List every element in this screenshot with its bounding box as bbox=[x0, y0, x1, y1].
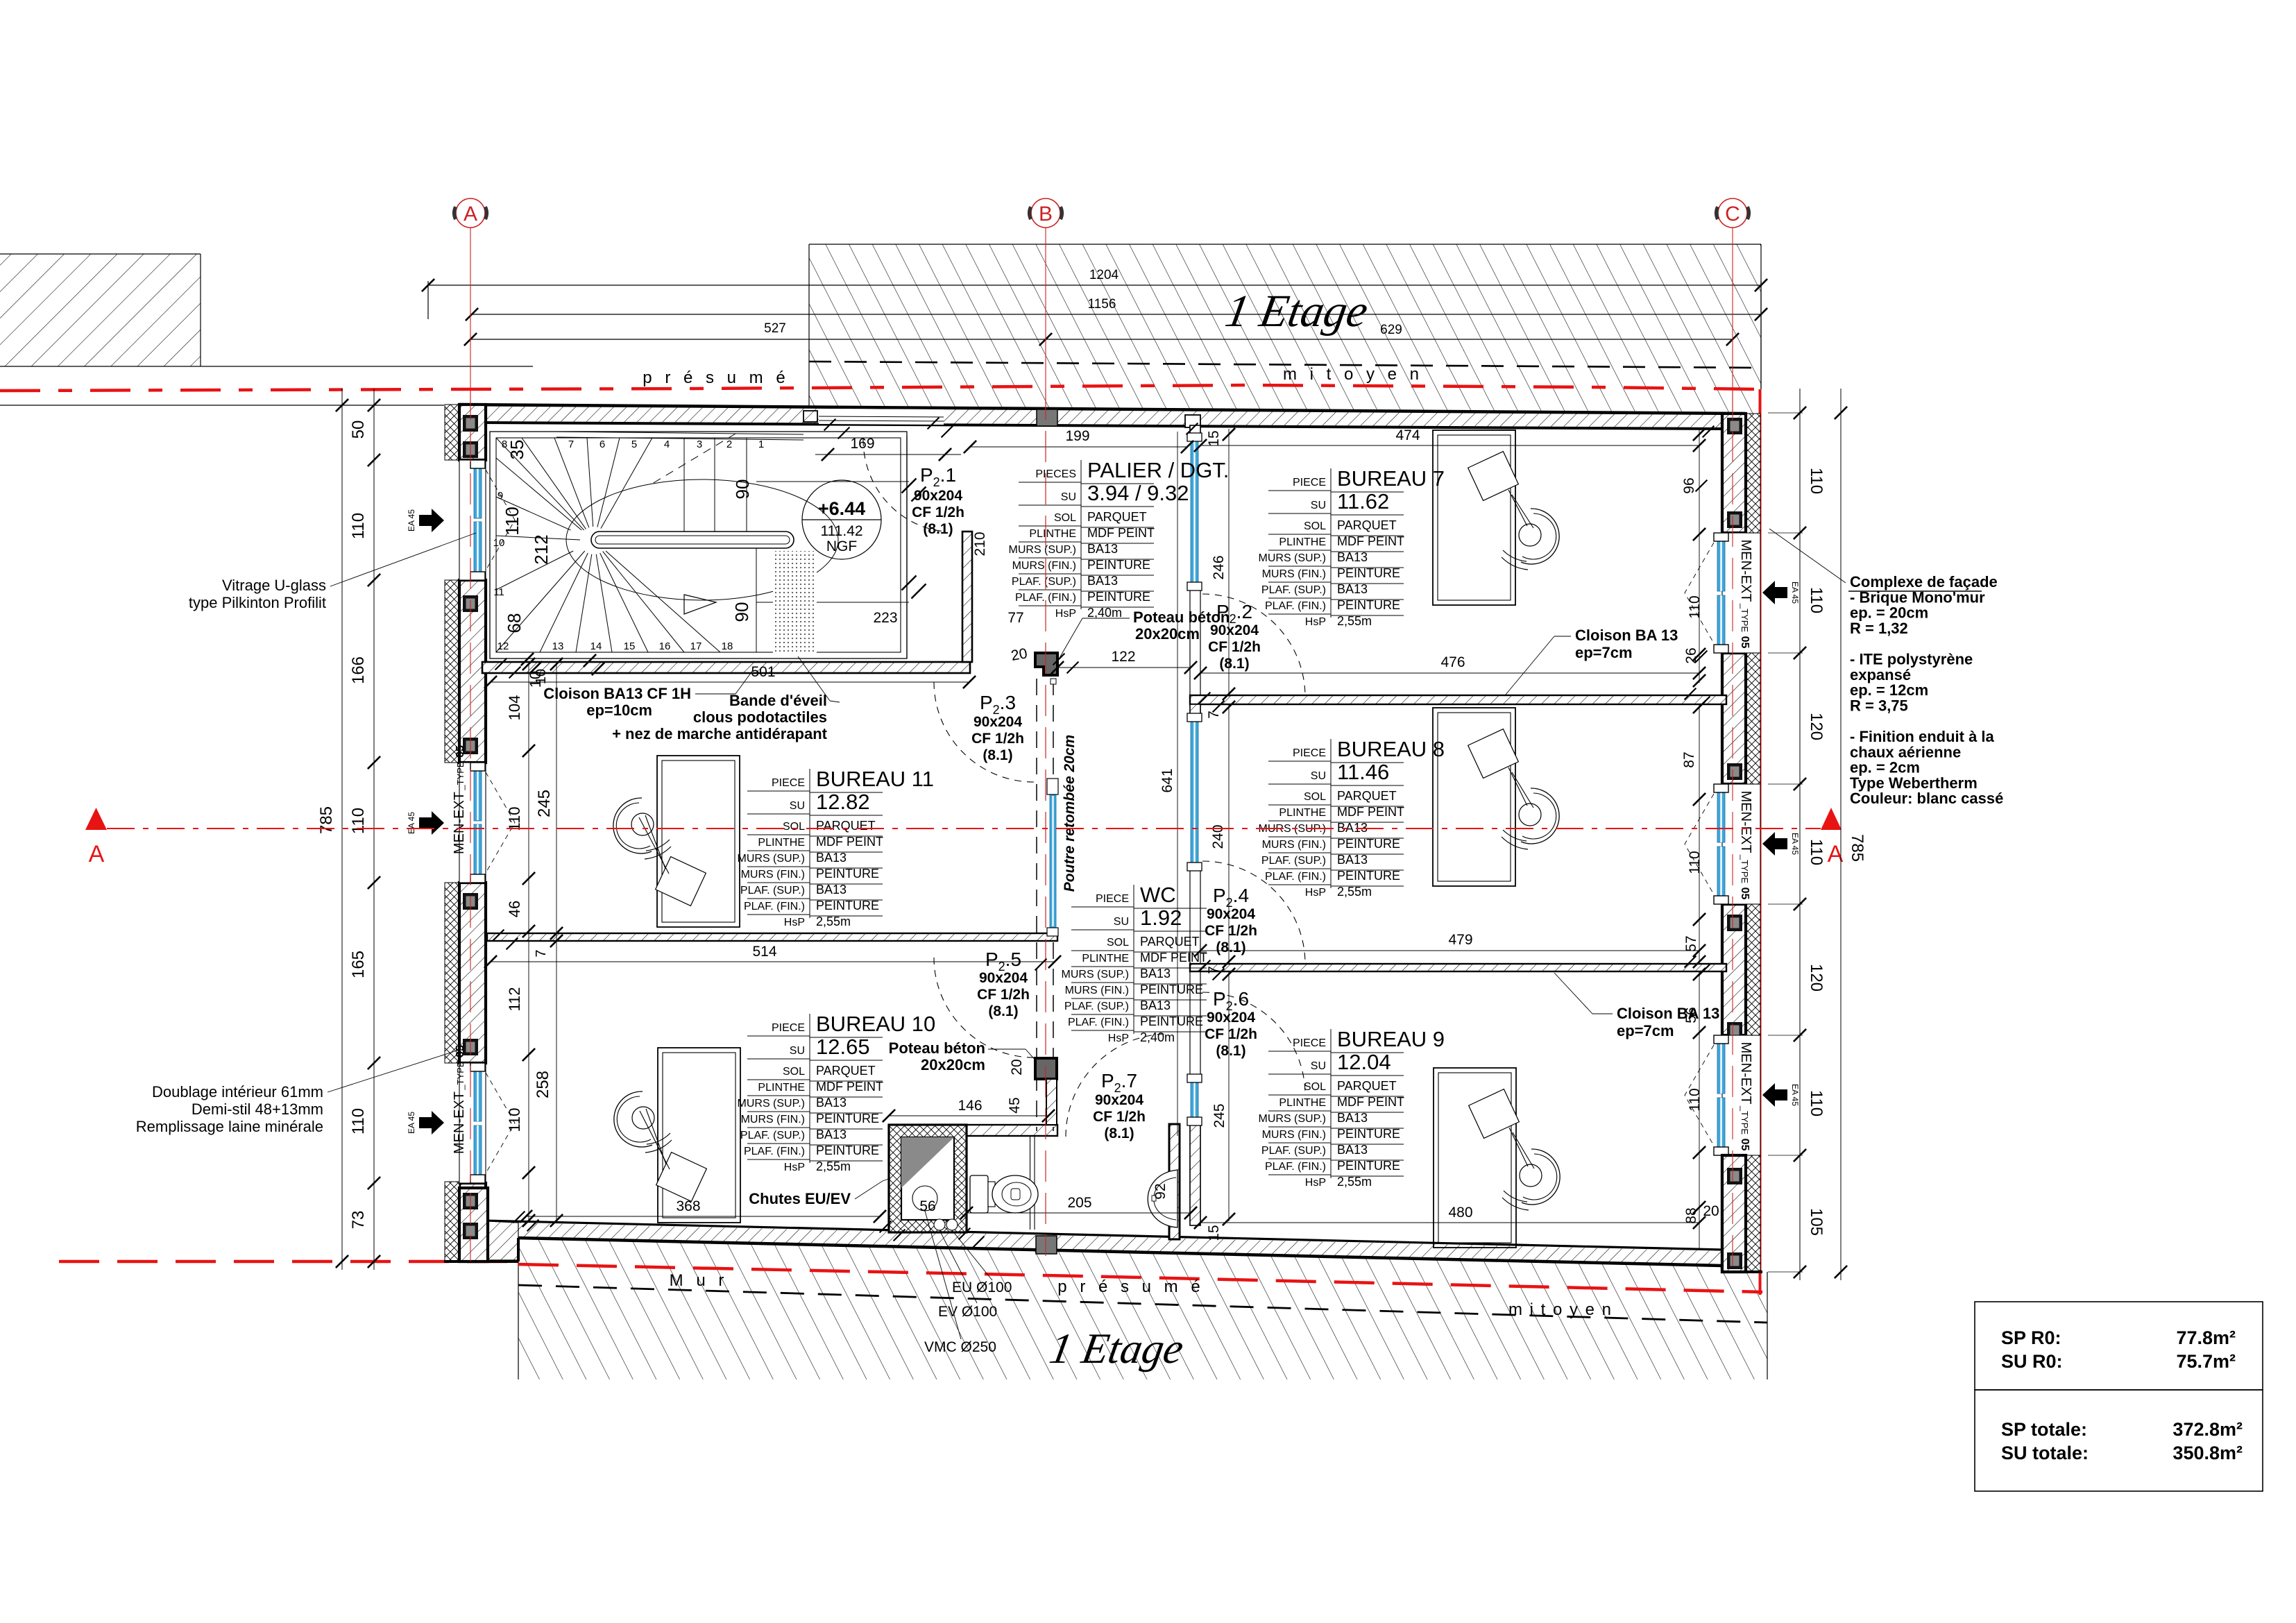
svg-text:PLINTHE: PLINTHE bbox=[758, 1082, 805, 1094]
svg-text:68: 68 bbox=[504, 613, 525, 634]
svg-text:PEINTURE: PEINTURE bbox=[816, 899, 879, 912]
svg-text:SOL: SOL bbox=[1304, 520, 1326, 532]
svg-text:PEINTURE: PEINTURE bbox=[1337, 566, 1400, 580]
svg-text:SP R0:: SP R0: bbox=[2001, 1327, 2061, 1348]
svg-text:EA 45: EA 45 bbox=[407, 509, 416, 532]
svg-text:PLAF. (SUP.): PLAF. (SUP.) bbox=[1261, 584, 1326, 596]
svg-text:Couleur: blanc cassé: Couleur: blanc cassé bbox=[1850, 790, 2003, 807]
svg-text:BUREAU 7: BUREAU 7 bbox=[1337, 466, 1445, 491]
svg-text:(8.1): (8.1) bbox=[1219, 656, 1249, 672]
svg-text:CF 1/2h: CF 1/2h bbox=[1205, 923, 1257, 939]
svg-text:B: B bbox=[1039, 203, 1053, 226]
svg-text:SU: SU bbox=[1311, 1060, 1326, 1072]
svg-text:BUREAU 9: BUREAU 9 bbox=[1337, 1027, 1445, 1051]
svg-text:SU: SU bbox=[1311, 500, 1326, 511]
svg-text:146: 146 bbox=[958, 1098, 982, 1114]
svg-text:1156: 1156 bbox=[1088, 297, 1116, 312]
svg-text:MEN-EXT: MEN-EXT bbox=[1738, 1042, 1753, 1105]
svg-text:56: 56 bbox=[919, 1198, 935, 1214]
svg-text:PEINTURE: PEINTURE bbox=[1337, 869, 1400, 883]
svg-text:90x204: 90x204 bbox=[1095, 1092, 1143, 1108]
svg-text:m i t o y e n: m i t o y e n bbox=[1283, 365, 1423, 384]
svg-text:46: 46 bbox=[506, 901, 523, 917]
svg-text:368: 368 bbox=[676, 1198, 700, 1214]
svg-text:SOL: SOL bbox=[1054, 512, 1076, 524]
svg-text:PLAF. (SUP.): PLAF. (SUP.) bbox=[740, 1130, 805, 1141]
svg-text:4: 4 bbox=[664, 439, 670, 450]
svg-text:73: 73 bbox=[349, 1211, 368, 1230]
svg-text:expansé: expansé bbox=[1850, 666, 1911, 683]
svg-text:MURS (FIN.): MURS (FIN.) bbox=[741, 1114, 805, 1125]
svg-text:PIECE: PIECE bbox=[1293, 747, 1326, 759]
svg-text:MURS (SUP.): MURS (SUP.) bbox=[1259, 552, 1327, 564]
svg-text:Remplissage laine minérale: Remplissage laine minérale bbox=[136, 1118, 323, 1135]
svg-text:476: 476 bbox=[1440, 654, 1465, 670]
svg-text:165: 165 bbox=[349, 951, 368, 978]
svg-text:HsP: HsP bbox=[1305, 887, 1326, 899]
svg-text:HsP: HsP bbox=[784, 917, 805, 928]
svg-text:57: 57 bbox=[1683, 935, 1699, 951]
svg-text:90x204: 90x204 bbox=[914, 488, 962, 504]
svg-text:35: 35 bbox=[507, 440, 527, 460]
svg-text:ep=7cm: ep=7cm bbox=[1575, 644, 1633, 661]
svg-text:BA13: BA13 bbox=[1140, 999, 1171, 1012]
svg-text:205: 205 bbox=[1067, 1195, 1091, 1211]
svg-text:18: 18 bbox=[722, 640, 733, 652]
svg-text:PEINTURE: PEINTURE bbox=[1337, 1159, 1400, 1173]
svg-text:EA 45: EA 45 bbox=[407, 1112, 416, 1134]
svg-text:2,55m: 2,55m bbox=[1337, 614, 1372, 628]
svg-text:PEINTURE: PEINTURE bbox=[1140, 1014, 1203, 1028]
svg-text:110: 110 bbox=[349, 513, 368, 539]
svg-text:EA 45: EA 45 bbox=[1790, 581, 1800, 604]
svg-text:p r é s u m é: p r é s u m é bbox=[643, 368, 789, 387]
svg-text:BUREAU 11: BUREAU 11 bbox=[816, 767, 934, 791]
svg-text:11: 11 bbox=[493, 586, 504, 598]
svg-text:Complexe de façade: Complexe de façade bbox=[1850, 573, 1998, 590]
svg-text:EA 45: EA 45 bbox=[1790, 833, 1800, 855]
svg-text:HsP: HsP bbox=[1305, 1177, 1326, 1189]
svg-text:m i t o y e n: m i t o y e n bbox=[1508, 1300, 1613, 1319]
svg-text:PARQUET: PARQUET bbox=[816, 1064, 876, 1078]
svg-text:SP totale:: SP totale: bbox=[2001, 1419, 2087, 1440]
svg-text:PARQUET: PARQUET bbox=[1140, 935, 1200, 949]
svg-text:9: 9 bbox=[498, 490, 503, 502]
svg-text:SU totale:: SU totale: bbox=[2001, 1443, 2089, 1463]
svg-text:BA13: BA13 bbox=[816, 1128, 847, 1141]
svg-text:111.42: 111.42 bbox=[820, 523, 862, 539]
svg-text:R = 1,32: R = 1,32 bbox=[1850, 620, 1908, 637]
svg-text:1 Etage: 1 Etage bbox=[1046, 1324, 1187, 1372]
svg-text:90x204: 90x204 bbox=[973, 714, 1022, 730]
svg-text:MURS (SUP.): MURS (SUP.) bbox=[1009, 544, 1077, 556]
svg-text:110: 110 bbox=[1807, 1090, 1826, 1116]
svg-text:Poutre retombée 20cm: Poutre retombée 20cm bbox=[1062, 735, 1078, 892]
svg-text:HsP: HsP bbox=[1055, 608, 1076, 620]
svg-text:245: 245 bbox=[535, 790, 554, 817]
svg-text:BA13: BA13 bbox=[1140, 967, 1171, 980]
svg-text:6: 6 bbox=[599, 439, 605, 450]
svg-text:Cloison BA 13: Cloison BA 13 bbox=[1575, 627, 1678, 644]
svg-text:MEN-EXT: MEN-EXT bbox=[452, 1091, 467, 1154]
svg-text:ep. = 20cm: ep. = 20cm bbox=[1850, 604, 1928, 622]
svg-text:90x204: 90x204 bbox=[1207, 906, 1255, 922]
svg-text:MDF PEINT: MDF PEINT bbox=[1337, 534, 1404, 548]
svg-text:479: 479 bbox=[1448, 932, 1472, 948]
svg-text:14: 14 bbox=[590, 640, 602, 652]
svg-text:+6.44: +6.44 bbox=[818, 498, 865, 519]
svg-text:169: 169 bbox=[850, 436, 874, 452]
svg-text:BA13: BA13 bbox=[1087, 542, 1118, 556]
svg-text:BA13: BA13 bbox=[816, 851, 847, 865]
svg-text:5: 5 bbox=[631, 439, 637, 450]
svg-text:SU R0:: SU R0: bbox=[2001, 1351, 2063, 1372]
svg-text:- ITE polystyrène: - ITE polystyrène bbox=[1850, 651, 1973, 668]
svg-text:EA 45: EA 45 bbox=[1790, 1084, 1800, 1106]
svg-text:PIECE: PIECE bbox=[1293, 1037, 1326, 1049]
svg-text:110: 110 bbox=[506, 806, 523, 831]
svg-text:501: 501 bbox=[751, 664, 775, 680]
svg-text:PLAF. (FIN.): PLAF. (FIN.) bbox=[744, 1146, 805, 1157]
svg-text:05: 05 bbox=[1739, 1139, 1751, 1151]
svg-text:PEINTURE: PEINTURE bbox=[1087, 590, 1150, 604]
svg-text:PEINTURE: PEINTURE bbox=[816, 1144, 879, 1157]
svg-text:(8.1): (8.1) bbox=[923, 521, 953, 537]
svg-text:BA13: BA13 bbox=[816, 883, 847, 897]
svg-text:MURS (SUP.): MURS (SUP.) bbox=[738, 853, 806, 865]
svg-text:clous podotactiles: clous podotactiles bbox=[693, 708, 827, 726]
svg-text:CF 1/2h: CF 1/2h bbox=[977, 987, 1030, 1003]
svg-text:75.7m²: 75.7m² bbox=[2176, 1351, 2236, 1372]
svg-text:_TYPE: _TYPE bbox=[1740, 854, 1750, 884]
svg-text:45: 45 bbox=[1007, 1097, 1023, 1113]
svg-text:CF 1/2h: CF 1/2h bbox=[971, 731, 1024, 747]
svg-text:MURS (SUP.): MURS (SUP.) bbox=[1259, 1113, 1327, 1125]
svg-text:PIECE: PIECE bbox=[1096, 893, 1129, 905]
svg-text:Type Webertherm: Type Webertherm bbox=[1850, 774, 1978, 792]
svg-text:13: 13 bbox=[552, 640, 564, 652]
svg-text:BA13: BA13 bbox=[1337, 550, 1368, 564]
svg-text:17: 17 bbox=[690, 640, 702, 652]
svg-text:122: 122 bbox=[1111, 649, 1135, 665]
svg-text:SOL: SOL bbox=[783, 1066, 805, 1078]
svg-text:PLINTHE: PLINTHE bbox=[1279, 536, 1326, 548]
svg-text:SOL: SOL bbox=[1304, 1081, 1326, 1093]
svg-text:474: 474 bbox=[1395, 427, 1420, 443]
svg-text:PIECE: PIECE bbox=[1293, 477, 1326, 488]
svg-text:A: A bbox=[89, 841, 105, 867]
svg-text:110: 110 bbox=[1687, 1088, 1703, 1111]
svg-text:PEINTURE: PEINTURE bbox=[1087, 558, 1150, 572]
svg-text:258: 258 bbox=[534, 1071, 552, 1098]
svg-text:1: 1 bbox=[758, 439, 764, 450]
svg-text:90: 90 bbox=[731, 602, 752, 622]
svg-text:PLAF. (FIN.): PLAF. (FIN.) bbox=[744, 901, 805, 912]
svg-text:7: 7 bbox=[534, 949, 549, 957]
svg-text:(8.1): (8.1) bbox=[1216, 940, 1245, 955]
svg-text:2: 2 bbox=[726, 439, 732, 450]
svg-text:(8.1): (8.1) bbox=[988, 1003, 1018, 1019]
svg-text:20: 20 bbox=[1009, 1059, 1025, 1075]
svg-text:MURS (FIN.): MURS (FIN.) bbox=[741, 869, 805, 881]
svg-text:2,55m: 2,55m bbox=[1337, 885, 1372, 899]
svg-text:PEINTURE: PEINTURE bbox=[816, 1112, 879, 1125]
svg-text:PLINTHE: PLINTHE bbox=[1279, 807, 1326, 819]
svg-text:PEINTURE: PEINTURE bbox=[1337, 1127, 1400, 1141]
svg-text:CF 1/2h: CF 1/2h bbox=[912, 504, 964, 520]
svg-text:20: 20 bbox=[1703, 1203, 1719, 1219]
svg-text:2,55m: 2,55m bbox=[816, 915, 851, 928]
svg-text:MURS (FIN.): MURS (FIN.) bbox=[1012, 560, 1076, 572]
svg-text:20x20cm: 20x20cm bbox=[1135, 625, 1200, 643]
svg-text:PEINTURE: PEINTURE bbox=[816, 867, 879, 881]
svg-text:110: 110 bbox=[1807, 587, 1826, 613]
svg-text:MDF PEINT: MDF PEINT bbox=[816, 1080, 883, 1094]
svg-text:(8.1): (8.1) bbox=[983, 747, 1012, 763]
svg-text:BA13: BA13 bbox=[1337, 1143, 1368, 1157]
svg-text:EU Ø100: EU Ø100 bbox=[952, 1280, 1012, 1295]
svg-text:ep=7cm: ep=7cm bbox=[1617, 1022, 1674, 1039]
svg-text:CF 1/2h: CF 1/2h bbox=[1093, 1109, 1146, 1125]
svg-text:- Finition enduit à la: - Finition enduit à la bbox=[1850, 728, 1995, 745]
svg-text:77: 77 bbox=[1007, 610, 1023, 626]
svg-text:PARQUET: PARQUET bbox=[1337, 1079, 1397, 1093]
svg-text:PIECE: PIECE bbox=[772, 1022, 805, 1034]
svg-text:527: 527 bbox=[764, 321, 786, 336]
svg-text:110: 110 bbox=[349, 1108, 368, 1135]
svg-text:BA13: BA13 bbox=[1337, 582, 1368, 596]
svg-text:350.8m²: 350.8m² bbox=[2172, 1443, 2243, 1463]
svg-text:MURS (SUP.): MURS (SUP.) bbox=[1062, 969, 1130, 980]
svg-text:MEN-EXT: MEN-EXT bbox=[1738, 540, 1753, 602]
svg-text:ep=10cm: ep=10cm bbox=[586, 702, 652, 719]
svg-text:MDF PEINT: MDF PEINT bbox=[1337, 1095, 1404, 1109]
svg-text:MEN-EXT: MEN-EXT bbox=[1738, 791, 1753, 853]
svg-text:785: 785 bbox=[317, 806, 336, 834]
svg-text:MURS (FIN.): MURS (FIN.) bbox=[1262, 568, 1326, 580]
svg-text:WC: WC bbox=[1140, 883, 1176, 907]
svg-text:PEINTURE: PEINTURE bbox=[1337, 598, 1400, 612]
svg-text:110: 110 bbox=[1687, 851, 1703, 874]
svg-text:20x20cm: 20x20cm bbox=[921, 1056, 985, 1073]
svg-text:20: 20 bbox=[1010, 645, 1028, 664]
svg-text:MDF PEINT: MDF PEINT bbox=[1087, 526, 1155, 540]
svg-text:PLAF. (SUP.): PLAF. (SUP.) bbox=[1012, 576, 1076, 588]
svg-text:PLAF. (FIN.): PLAF. (FIN.) bbox=[1265, 1161, 1326, 1173]
svg-text:12: 12 bbox=[498, 640, 509, 652]
svg-text:05: 05 bbox=[1739, 636, 1751, 649]
svg-text:110: 110 bbox=[1807, 839, 1826, 865]
svg-text:MDF PEINT: MDF PEINT bbox=[1337, 805, 1404, 819]
svg-text:CF 1/2h: CF 1/2h bbox=[1208, 639, 1261, 655]
svg-text:PEINTURE: PEINTURE bbox=[1337, 837, 1400, 851]
svg-text:SU: SU bbox=[790, 800, 805, 812]
svg-text:2,55m: 2,55m bbox=[1337, 1175, 1372, 1189]
svg-text:HsP: HsP bbox=[784, 1162, 805, 1173]
svg-text:110: 110 bbox=[506, 1107, 523, 1132]
svg-text:12.82: 12.82 bbox=[816, 790, 870, 814]
svg-text:SOL: SOL bbox=[1304, 791, 1326, 803]
svg-text:629: 629 bbox=[1380, 323, 1402, 337]
svg-text:10: 10 bbox=[493, 537, 505, 549]
svg-text:166: 166 bbox=[349, 656, 368, 684]
svg-text:12.04: 12.04 bbox=[1337, 1050, 1391, 1074]
svg-text:MDF PEINT: MDF PEINT bbox=[816, 835, 883, 849]
svg-text:C: C bbox=[1725, 203, 1740, 226]
svg-text:372.8m²: 372.8m² bbox=[2172, 1419, 2243, 1440]
svg-text:EV Ø100: EV Ø100 bbox=[938, 1304, 997, 1320]
svg-text:chaux aérienne: chaux aérienne bbox=[1850, 743, 1961, 760]
svg-text:MEN-EXT: MEN-EXT bbox=[452, 792, 467, 854]
svg-text:2,40m: 2,40m bbox=[1087, 606, 1122, 620]
svg-text:PLAF. (SUP.): PLAF. (SUP.) bbox=[740, 885, 805, 897]
svg-text:212: 212 bbox=[531, 534, 552, 564]
svg-text:PARQUET: PARQUET bbox=[816, 819, 876, 833]
svg-text:PLINTHE: PLINTHE bbox=[1082, 953, 1129, 965]
svg-text:ep. = 2cm: ep. = 2cm bbox=[1850, 759, 1920, 776]
svg-text:120: 120 bbox=[1807, 713, 1826, 740]
svg-text:92: 92 bbox=[1153, 1183, 1168, 1199]
svg-text:SU: SU bbox=[1061, 491, 1076, 503]
svg-text:PLINTHE: PLINTHE bbox=[1279, 1097, 1326, 1109]
svg-text:10: 10 bbox=[534, 669, 549, 684]
svg-text:05: 05 bbox=[454, 745, 466, 758]
svg-text:246: 246 bbox=[1211, 555, 1227, 579]
svg-text:BA13: BA13 bbox=[816, 1096, 847, 1110]
svg-text:SOL: SOL bbox=[783, 821, 805, 833]
svg-text:SU: SU bbox=[790, 1045, 805, 1057]
svg-text:88: 88 bbox=[1683, 1207, 1699, 1223]
svg-text:p r é s u m é: p r é s u m é bbox=[1057, 1277, 1204, 1296]
svg-text:PLAF. (FIN.): PLAF. (FIN.) bbox=[1265, 871, 1326, 883]
svg-text:110: 110 bbox=[502, 507, 522, 535]
svg-text:A: A bbox=[464, 203, 477, 226]
svg-text:_TYPE: _TYPE bbox=[1740, 1105, 1750, 1135]
svg-text:112: 112 bbox=[506, 987, 523, 1011]
svg-text:PEINTURE: PEINTURE bbox=[1140, 983, 1203, 996]
svg-text:77.8m²: 77.8m² bbox=[2176, 1327, 2236, 1348]
svg-text:Cloison BA 13: Cloison BA 13 bbox=[1617, 1005, 1719, 1022]
svg-text:110: 110 bbox=[1687, 595, 1703, 618]
svg-text:110: 110 bbox=[349, 808, 368, 834]
svg-text:BA13: BA13 bbox=[1337, 853, 1368, 867]
svg-text:_TYPE: _TYPE bbox=[455, 761, 466, 791]
svg-text:MURS (FIN.): MURS (FIN.) bbox=[1262, 1129, 1326, 1141]
svg-text:3.94 / 9.32: 3.94 / 9.32 bbox=[1087, 481, 1189, 505]
svg-text:245: 245 bbox=[1211, 1103, 1227, 1128]
svg-text:05: 05 bbox=[454, 1045, 466, 1057]
svg-text:1.92: 1.92 bbox=[1140, 906, 1182, 930]
svg-text:11.62: 11.62 bbox=[1337, 489, 1389, 513]
svg-text:MURS (SUP.): MURS (SUP.) bbox=[738, 1098, 806, 1110]
svg-text:1204: 1204 bbox=[1089, 268, 1119, 282]
svg-text:PARQUET: PARQUET bbox=[1337, 789, 1397, 803]
svg-text:_TYPE: _TYPE bbox=[1740, 603, 1750, 633]
svg-text:7: 7 bbox=[568, 439, 574, 450]
svg-text:+ nez de marche antidérapant: + nez de marche antidérapant bbox=[612, 725, 828, 742]
svg-text:05: 05 bbox=[1739, 887, 1751, 900]
svg-text:PLAF. (SUP.): PLAF. (SUP.) bbox=[1261, 1145, 1326, 1157]
svg-text:VMC Ø250: VMC Ø250 bbox=[924, 1339, 996, 1355]
svg-text:CF 1/2h: CF 1/2h bbox=[1205, 1026, 1257, 1042]
svg-text:_TYPE: _TYPE bbox=[455, 1061, 466, 1091]
svg-text:BUREAU 8: BUREAU 8 bbox=[1337, 737, 1445, 761]
svg-text:16: 16 bbox=[659, 640, 671, 652]
svg-text:104: 104 bbox=[506, 695, 523, 721]
svg-text:223: 223 bbox=[873, 610, 897, 626]
svg-text:110: 110 bbox=[1807, 468, 1826, 494]
svg-text:2,40m: 2,40m bbox=[1140, 1030, 1175, 1044]
svg-text:Poteau béton: Poteau béton bbox=[889, 1039, 985, 1057]
svg-text:Cloison BA13 CF 1H: Cloison BA13 CF 1H bbox=[543, 685, 691, 702]
svg-text:Bande d'éveil: Bande d'éveil bbox=[729, 692, 827, 709]
svg-text:BA13: BA13 bbox=[1337, 1111, 1368, 1125]
svg-text:(8.1): (8.1) bbox=[1104, 1125, 1134, 1141]
svg-text:PLAF. (FIN.): PLAF. (FIN.) bbox=[1068, 1017, 1129, 1028]
svg-text:105: 105 bbox=[1807, 1208, 1826, 1236]
svg-text:PLAF. (SUP.): PLAF. (SUP.) bbox=[1261, 855, 1326, 867]
svg-text:ep. = 12cm: ep. = 12cm bbox=[1850, 681, 1928, 699]
svg-text:(8.1): (8.1) bbox=[1216, 1043, 1245, 1059]
svg-text:Poteau béton: Poteau béton bbox=[1133, 609, 1230, 626]
svg-text:M u r: M u r bbox=[670, 1271, 729, 1290]
svg-text:12.65: 12.65 bbox=[816, 1035, 870, 1059]
svg-text:210: 210 bbox=[972, 532, 988, 556]
svg-text:480: 480 bbox=[1448, 1205, 1472, 1221]
svg-text:1 Etage: 1 Etage bbox=[1222, 286, 1372, 336]
svg-text:MURS (FIN.): MURS (FIN.) bbox=[1065, 985, 1129, 996]
svg-text:R = 3,75: R = 3,75 bbox=[1850, 697, 1908, 714]
svg-text:Chutes EU/EV: Chutes EU/EV bbox=[749, 1190, 851, 1207]
svg-text:- Brique Mono'mur: - Brique Mono'mur bbox=[1850, 588, 1985, 606]
svg-text:PIECES: PIECES bbox=[1035, 468, 1076, 480]
svg-text:641: 641 bbox=[1159, 768, 1175, 792]
svg-text:90x204: 90x204 bbox=[1207, 1010, 1255, 1026]
svg-text:PARQUET: PARQUET bbox=[1337, 518, 1397, 532]
svg-text:HsP: HsP bbox=[1108, 1033, 1129, 1044]
svg-text:HsP: HsP bbox=[1305, 616, 1326, 628]
svg-text:PLAF. (SUP.): PLAF. (SUP.) bbox=[1064, 1001, 1129, 1012]
svg-text:Doublage intérieur 61mm: Doublage intérieur 61mm bbox=[152, 1083, 323, 1101]
svg-text:Demi-stil 48+13mm: Demi-stil 48+13mm bbox=[192, 1101, 323, 1118]
svg-text:90: 90 bbox=[732, 479, 753, 500]
svg-text:3: 3 bbox=[697, 439, 702, 450]
svg-text:PALIER / DGT.: PALIER / DGT. bbox=[1087, 458, 1229, 482]
svg-text:50: 50 bbox=[349, 420, 368, 439]
svg-text:199: 199 bbox=[1065, 428, 1089, 444]
svg-text:SU: SU bbox=[1311, 770, 1326, 782]
svg-text:SU: SU bbox=[1114, 916, 1129, 928]
svg-text:96: 96 bbox=[1681, 477, 1697, 493]
svg-text:15: 15 bbox=[1206, 1225, 1222, 1241]
svg-text:PIECE: PIECE bbox=[772, 777, 805, 789]
svg-text:MURS (FIN.): MURS (FIN.) bbox=[1262, 839, 1326, 851]
svg-text:PLINTHE: PLINTHE bbox=[1029, 528, 1076, 540]
svg-text:90x204: 90x204 bbox=[979, 970, 1028, 986]
svg-text:PLAF. (FIN.): PLAF. (FIN.) bbox=[1265, 600, 1326, 612]
svg-text:2,55m: 2,55m bbox=[816, 1159, 851, 1173]
svg-text:15: 15 bbox=[624, 640, 636, 652]
svg-text:120: 120 bbox=[1807, 964, 1826, 992]
svg-text:NGF: NGF bbox=[826, 538, 857, 554]
svg-text:11.46: 11.46 bbox=[1337, 760, 1389, 784]
svg-text:BA13: BA13 bbox=[1087, 574, 1118, 588]
svg-text:PARQUET: PARQUET bbox=[1087, 510, 1147, 524]
svg-text:785: 785 bbox=[1848, 834, 1866, 862]
svg-text:87: 87 bbox=[1681, 751, 1697, 767]
svg-text:SOL: SOL bbox=[1107, 937, 1129, 949]
svg-text:15: 15 bbox=[1206, 430, 1222, 446]
